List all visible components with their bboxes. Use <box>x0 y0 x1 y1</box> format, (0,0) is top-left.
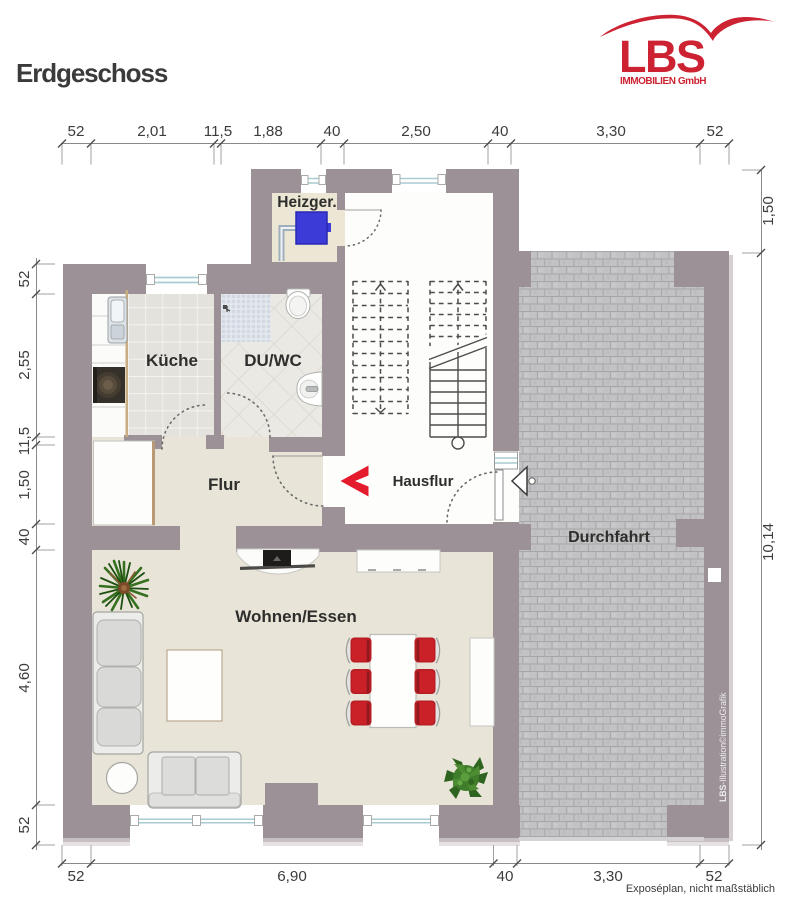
svg-text:Küche: Küche <box>146 351 198 370</box>
svg-text:4,60: 4,60 <box>16 663 33 693</box>
svg-text:40: 40 <box>16 529 33 546</box>
svg-text:52: 52 <box>16 817 33 834</box>
svg-text:11,5: 11,5 <box>204 123 232 140</box>
svg-text:6,90: 6,90 <box>277 868 307 885</box>
svg-text:52: 52 <box>16 271 33 288</box>
svg-text:Wohnen/Essen: Wohnen/Essen <box>235 607 357 626</box>
svg-text:IMMOBILIEN GmbH: IMMOBILIEN GmbH <box>620 76 706 87</box>
svg-text:Exposéplan, nicht maßstäblich: Exposéplan, nicht maßstäblich <box>626 883 775 895</box>
svg-text:Hausflur: Hausflur <box>393 473 454 490</box>
svg-text:Flur: Flur <box>208 475 240 494</box>
svg-text:52: 52 <box>68 868 85 885</box>
svg-text:1,88: 1,88 <box>253 123 283 140</box>
svg-text:2,01: 2,01 <box>137 123 167 140</box>
svg-text:11,5: 11,5 <box>16 427 33 455</box>
svg-text:2,55: 2,55 <box>16 350 33 380</box>
svg-text:LBS-Illustration©immoGrafik: LBS-Illustration©immoGrafik <box>718 692 728 802</box>
svg-text:2,50: 2,50 <box>401 123 431 140</box>
svg-text:40: 40 <box>324 123 341 140</box>
svg-text:3,30: 3,30 <box>596 123 626 140</box>
svg-text:3,30: 3,30 <box>593 868 623 885</box>
svg-text:Erdgeschoss: Erdgeschoss <box>16 58 168 88</box>
svg-text:LBS: LBS <box>619 31 705 82</box>
svg-text:Heizger.: Heizger. <box>277 194 336 211</box>
svg-text:40: 40 <box>492 123 509 140</box>
svg-text:1,50: 1,50 <box>760 196 777 226</box>
svg-text:Durchfahrt: Durchfahrt <box>568 529 650 546</box>
svg-text:52: 52 <box>707 123 724 140</box>
svg-text:52: 52 <box>68 123 85 140</box>
svg-text:DU/WC: DU/WC <box>244 351 302 370</box>
svg-text:40: 40 <box>497 868 514 885</box>
svg-text:1,50: 1,50 <box>16 470 33 500</box>
svg-text:10,14: 10,14 <box>760 523 777 561</box>
